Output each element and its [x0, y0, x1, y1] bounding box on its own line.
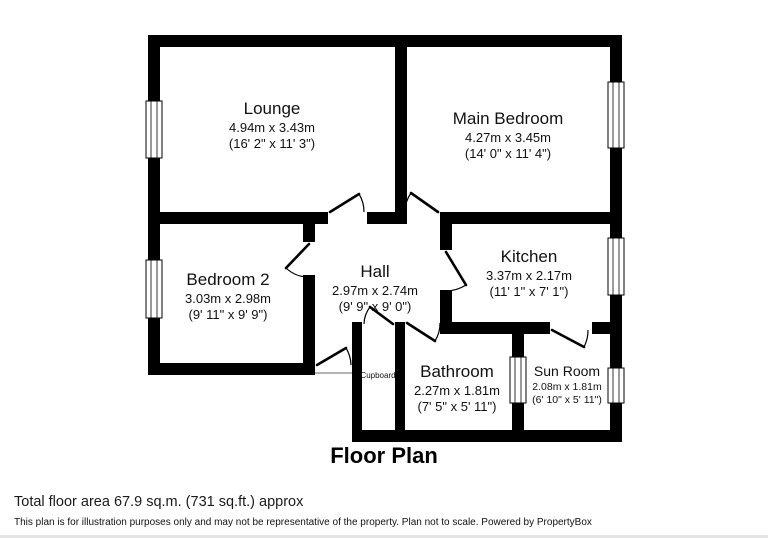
room-metric-dimensions: 4.94m x 3.43m: [229, 120, 315, 137]
wall-bathroom-top: [440, 322, 550, 334]
room-name: Lounge: [229, 98, 315, 120]
lounge-door: [330, 194, 364, 212]
bathroom-door: [407, 323, 440, 341]
room-name: Kitchen: [486, 246, 572, 268]
wall-bottom-right-section: [352, 430, 622, 442]
total-floor-area-text: Total floor area 67.9 sq.m. (731 sq.ft.)…: [14, 494, 303, 510]
room-imperial-dimensions: (9' 9" x 9' 0"): [332, 299, 418, 316]
main-bedroom-window: [608, 82, 624, 148]
disclaimer-text: This plan is for illustration purposes o…: [14, 517, 592, 528]
room-metric-dimensions: 3.37m x 2.17m: [486, 268, 572, 285]
wall-lounge-bottom-left: [148, 212, 328, 224]
bathroom-sunroom-window: [510, 357, 526, 403]
room-name: Hall: [332, 261, 418, 283]
room-label-lounge: Lounge 4.94m x 3.43m (16' 2" x 11' 3"): [229, 98, 315, 153]
wall-bedroom2-hall-upper: [303, 212, 315, 242]
wall-kitchen-left-upper: [440, 224, 452, 250]
lounge-window: [146, 101, 162, 158]
room-label-main-bedroom: Main Bedroom 4.27m x 3.45m (14' 0" x 11'…: [453, 108, 564, 163]
room-name: Bathroom: [414, 361, 500, 383]
room-metric-dimensions: 2.97m x 2.74m: [332, 283, 418, 300]
room-name: Bedroom 2: [185, 269, 271, 291]
room-label-hall: Hall 2.97m x 2.74m (9' 9" x 9' 0"): [332, 261, 418, 316]
room-metric-dimensions: 3.03m x 2.98m: [185, 291, 271, 308]
room-metric-dimensions: 4.27m x 3.45m: [453, 130, 564, 147]
room-imperial-dimensions: (16' 2" x 11' 3"): [229, 136, 315, 153]
wall-mainbedroom-kitchen: [440, 212, 622, 224]
sunroom-window: [608, 368, 624, 403]
wall-bathroom-sunroom-upper: [512, 332, 524, 357]
kitchen-window: [608, 238, 624, 295]
room-label-kitchen: Kitchen 3.37m x 2.17m (11' 1" x 7' 1"): [486, 246, 572, 301]
room-metric-dimensions: 2.08m x 1.81m: [532, 381, 602, 394]
room-imperial-dimensions: (11' 1" x 7' 1"): [486, 284, 572, 301]
plan-title: Floor Plan: [330, 443, 438, 469]
wall-left: [148, 35, 160, 375]
room-imperial-dimensions: (6' 10" x 5' 11"): [532, 394, 602, 407]
room-label-bedroom2: Bedroom 2 3.03m x 2.98m (9' 11" x 9' 9"): [185, 269, 271, 324]
floor-plan-drawing: [0, 0, 768, 490]
room-label-cupboard: Cupboard: [360, 371, 395, 380]
room-imperial-dimensions: (14' 0" x 11' 4"): [453, 146, 564, 163]
sunroom-door: [552, 330, 588, 347]
main-bedroom-door: [405, 193, 438, 212]
wall-bottom-bedroom2: [148, 363, 315, 375]
room-name: Sun Room: [532, 363, 602, 381]
room-name: Main Bedroom: [453, 108, 564, 130]
room-imperial-dimensions: (7' 5" x 5' 11"): [414, 399, 500, 416]
wall-bedroom2-hall-lower: [303, 275, 315, 363]
wall-cupboard-right: [395, 322, 405, 430]
wall-top: [148, 35, 622, 47]
wall-lounge-mainbedroom: [395, 47, 407, 224]
room-label-sun-room: Sun Room 2.08m x 1.81m (6' 10" x 5' 11"): [532, 363, 602, 408]
kitchen-door: [446, 252, 466, 291]
room-label-bathroom: Bathroom 2.27m x 1.81m (7' 5" x 5' 11"): [414, 361, 500, 416]
bedroom2-door: [286, 244, 309, 277]
room-imperial-dimensions: (9' 11" x 9' 9"): [185, 307, 271, 324]
wall-sunroom-top-stub: [592, 322, 610, 334]
entrance-door: [315, 348, 352, 373]
wall-bathroom-sunroom-lower: [512, 403, 524, 430]
wall-lounge-bottom-right: [367, 212, 395, 224]
bedroom2-window: [146, 260, 162, 318]
room-metric-dimensions: 2.27m x 1.81m: [414, 383, 500, 400]
floor-plan-page: Lounge 4.94m x 3.43m (16' 2" x 11' 3") M…: [0, 0, 768, 538]
